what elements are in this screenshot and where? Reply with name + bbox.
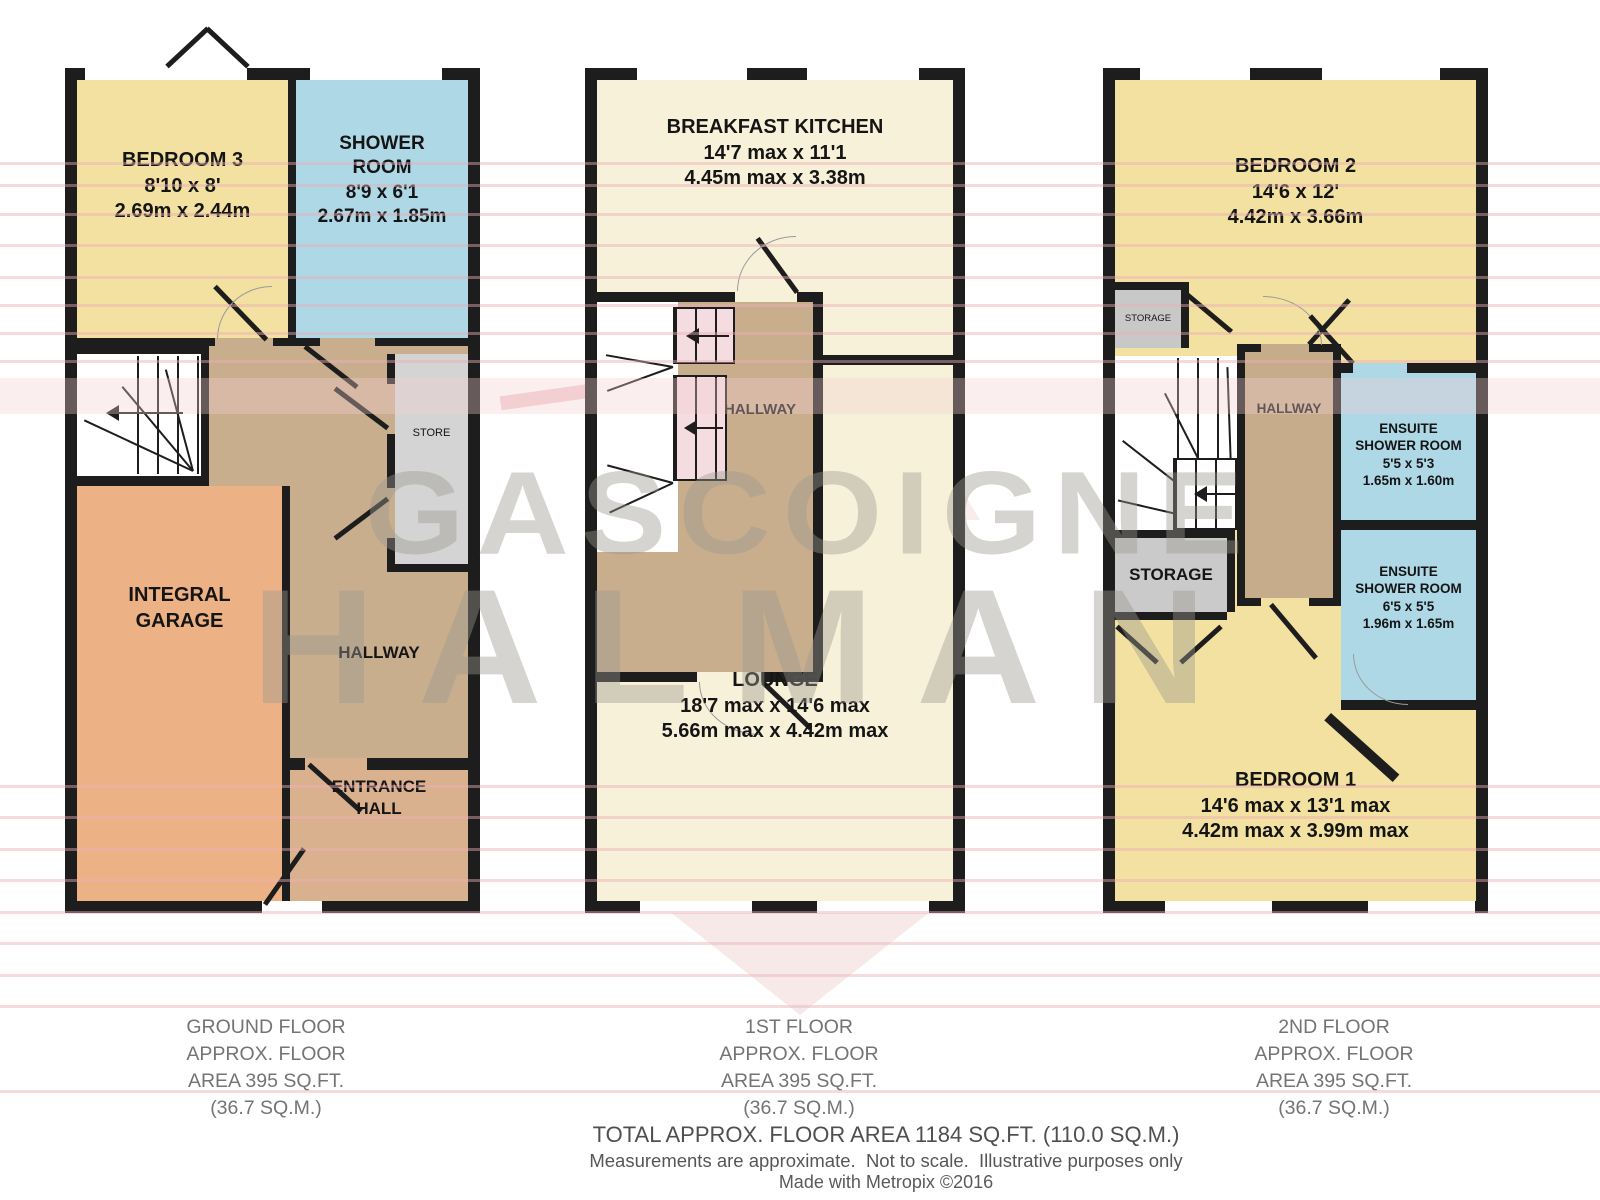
door-opening [1261,598,1309,606]
storage-room: STORAGE [1115,538,1227,612]
room-label-hallway: HALLWAY [1241,400,1337,417]
window [1322,68,1440,80]
room-label-hallway: HALLWAY [290,642,468,664]
ground-stairs [77,354,201,476]
wall [1115,282,1181,290]
door-opening [1261,344,1309,352]
french-door-leaf [165,26,209,68]
room-label-storage-small: STORAGE [1125,313,1171,325]
stair-winder-line [607,366,673,392]
room-label-bedroom2: BEDROOM 2 14'6 x 12' 4.42m x 3.66m [1115,154,1476,231]
disclaimer-text: Measurements are approximate. Not to sca… [436,1150,1336,1172]
total-area-text: TOTAL APPROX. FLOOR AREA 1184 SQ.FT. (11… [436,1122,1336,1148]
door-opening [320,338,375,346]
wall [1115,612,1227,620]
room-label-hallway: HALLWAY [705,400,815,419]
stair-winder-line [606,354,673,368]
room-label-bedroom3: BEDROOM 3 8'10 x 8' 2.69m x 2.44m [77,148,288,225]
store-room [395,354,468,564]
front-door-opening [262,901,322,913]
window [807,68,919,80]
floorplan-canvas: BEDROOM 3 8'10 x 8' 2.69m x 2.44m SHOWER… [0,0,1600,1200]
stair-winder-line [609,482,673,513]
stair-direction-arrow [111,412,183,414]
wall [1341,520,1476,530]
caption-first-floor: 1ST FLOOR APPROX. FLOOR AREA 395 SQ.FT. … [639,1014,959,1122]
wall [1227,530,1235,612]
credit-text: Made with Metropix ©2016 [436,1172,1336,1193]
window [817,901,929,913]
door-opening [735,292,797,302]
second-floor-plan: STORAGE STORAGE [1103,68,1488,913]
window [85,68,167,80]
first-stairs-enclosure [597,302,678,552]
room-label-store: STORE [395,426,468,440]
caption-ground-floor: GROUND FLOOR APPROX. FLOOR AREA 395 SQ.F… [106,1014,426,1122]
french-door-leaf [205,27,249,69]
caption-second-floor: 2ND FLOOR APPROX. FLOOR AREA 395 SQ.FT. … [1174,1014,1494,1122]
stair-flight-upper [673,307,735,364]
room-label-kitchen: BREAKFAST KITCHEN 14'7 max x 11'1 4.45m … [597,115,953,192]
first-floor-plan: BREAKFAST KITCHEN 14'7 max x 11'1 4.45m … [585,68,965,913]
wall [1115,530,1227,538]
stair-direction-arrow [691,335,729,337]
hall-connector [209,346,290,486]
wall [1333,344,1341,598]
door-opening [387,488,395,538]
storage-small-room: STORAGE [1115,290,1181,348]
room-label-garage: INTEGRAL GARAGE [77,583,282,634]
room-label-shower: SHOWER ROOM 8'9 x 6'1 2.67m x 1.85m [296,132,468,229]
window [1165,901,1272,913]
garage-room [77,486,282,901]
stair-flight-lower [673,375,727,481]
first-hallway-lower [597,552,678,682]
wall [1237,350,1245,598]
room-label-lounge: LOUNGE 18'7 max x 14'6 max 5.66m max x 4… [597,668,953,745]
window [640,901,752,913]
room-label-entrance: ENTRANCE HALL [290,776,468,820]
stair-direction-arrow [689,427,723,429]
ground-floor-plan: BEDROOM 3 8'10 x 8' 2.69m x 2.44m SHOWER… [65,68,480,913]
wall [1341,700,1476,710]
window [1140,68,1250,80]
window [1368,901,1475,913]
second-hallway-room [1245,352,1333,598]
room-label-ensuite2: ENSUITE SHOWER ROOM 6'5 x 5'5 1.96m x 1.… [1341,563,1476,632]
wall [813,292,823,682]
room-label-ensuite1: ENSUITE SHOWER ROOM 5'5 x 5'3 1.65m x 1.… [1341,420,1476,489]
room-label-storage: STORAGE [1129,564,1213,586]
french-door-opening [167,68,247,80]
window [310,68,442,80]
wall [823,355,953,365]
door-opening [1353,363,1407,373]
stair-winder-line [607,464,673,484]
wall [387,564,468,572]
window [637,68,747,80]
watermark-triangle-down [655,900,945,1015]
room-label-bedroom1: BEDROOM 1 14'6 max x 13'1 max 4.42m max … [1115,768,1476,845]
